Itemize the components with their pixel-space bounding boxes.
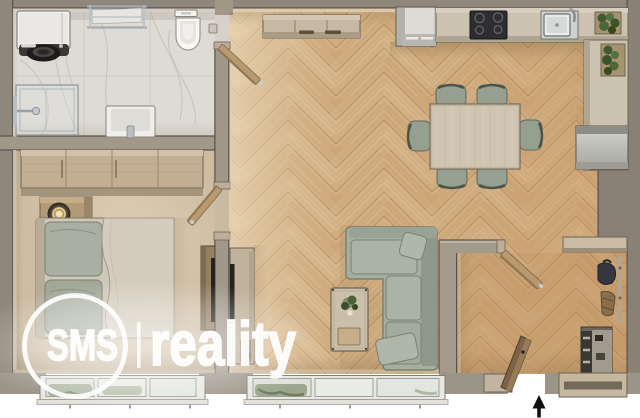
svg-text:reality: reality — [150, 310, 296, 379]
svg-text:SMS: SMS — [47, 321, 118, 370]
